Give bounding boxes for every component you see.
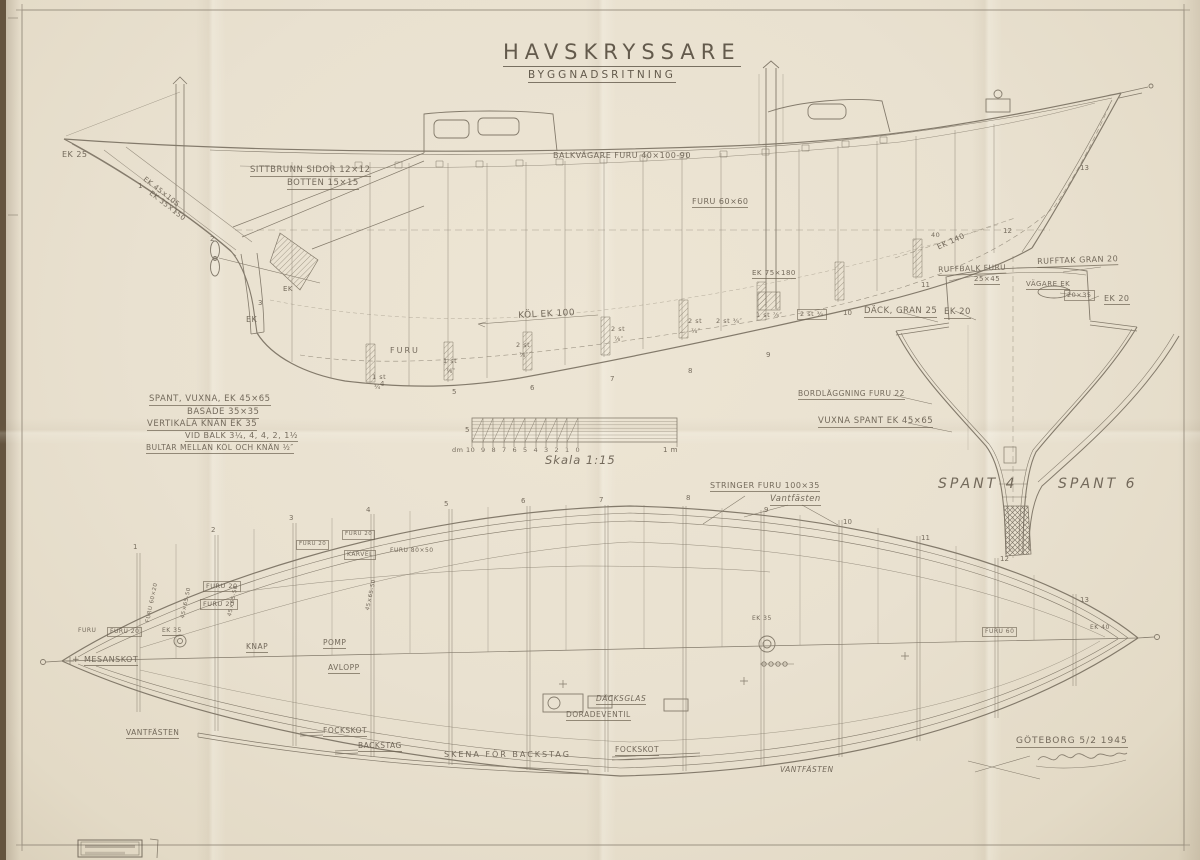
border-frame — [8, 4, 1190, 851]
side-view-profile — [64, 61, 1153, 386]
drawing-subtitle: BYGGNADSRITNING — [528, 69, 676, 83]
scale-bar — [472, 418, 677, 447]
body-sections — [893, 256, 1179, 558]
drawing-linework — [0, 0, 1200, 860]
signature — [1036, 753, 1127, 768]
plan-view — [41, 496, 1160, 779]
scanned-boat-drawing: HAVSKRYSSARE BYGGNADSRITNING EK 25EK 45×… — [0, 0, 1200, 860]
drawing-title: HAVSKRYSSARE — [503, 40, 741, 67]
archive-stamp — [78, 839, 158, 858]
